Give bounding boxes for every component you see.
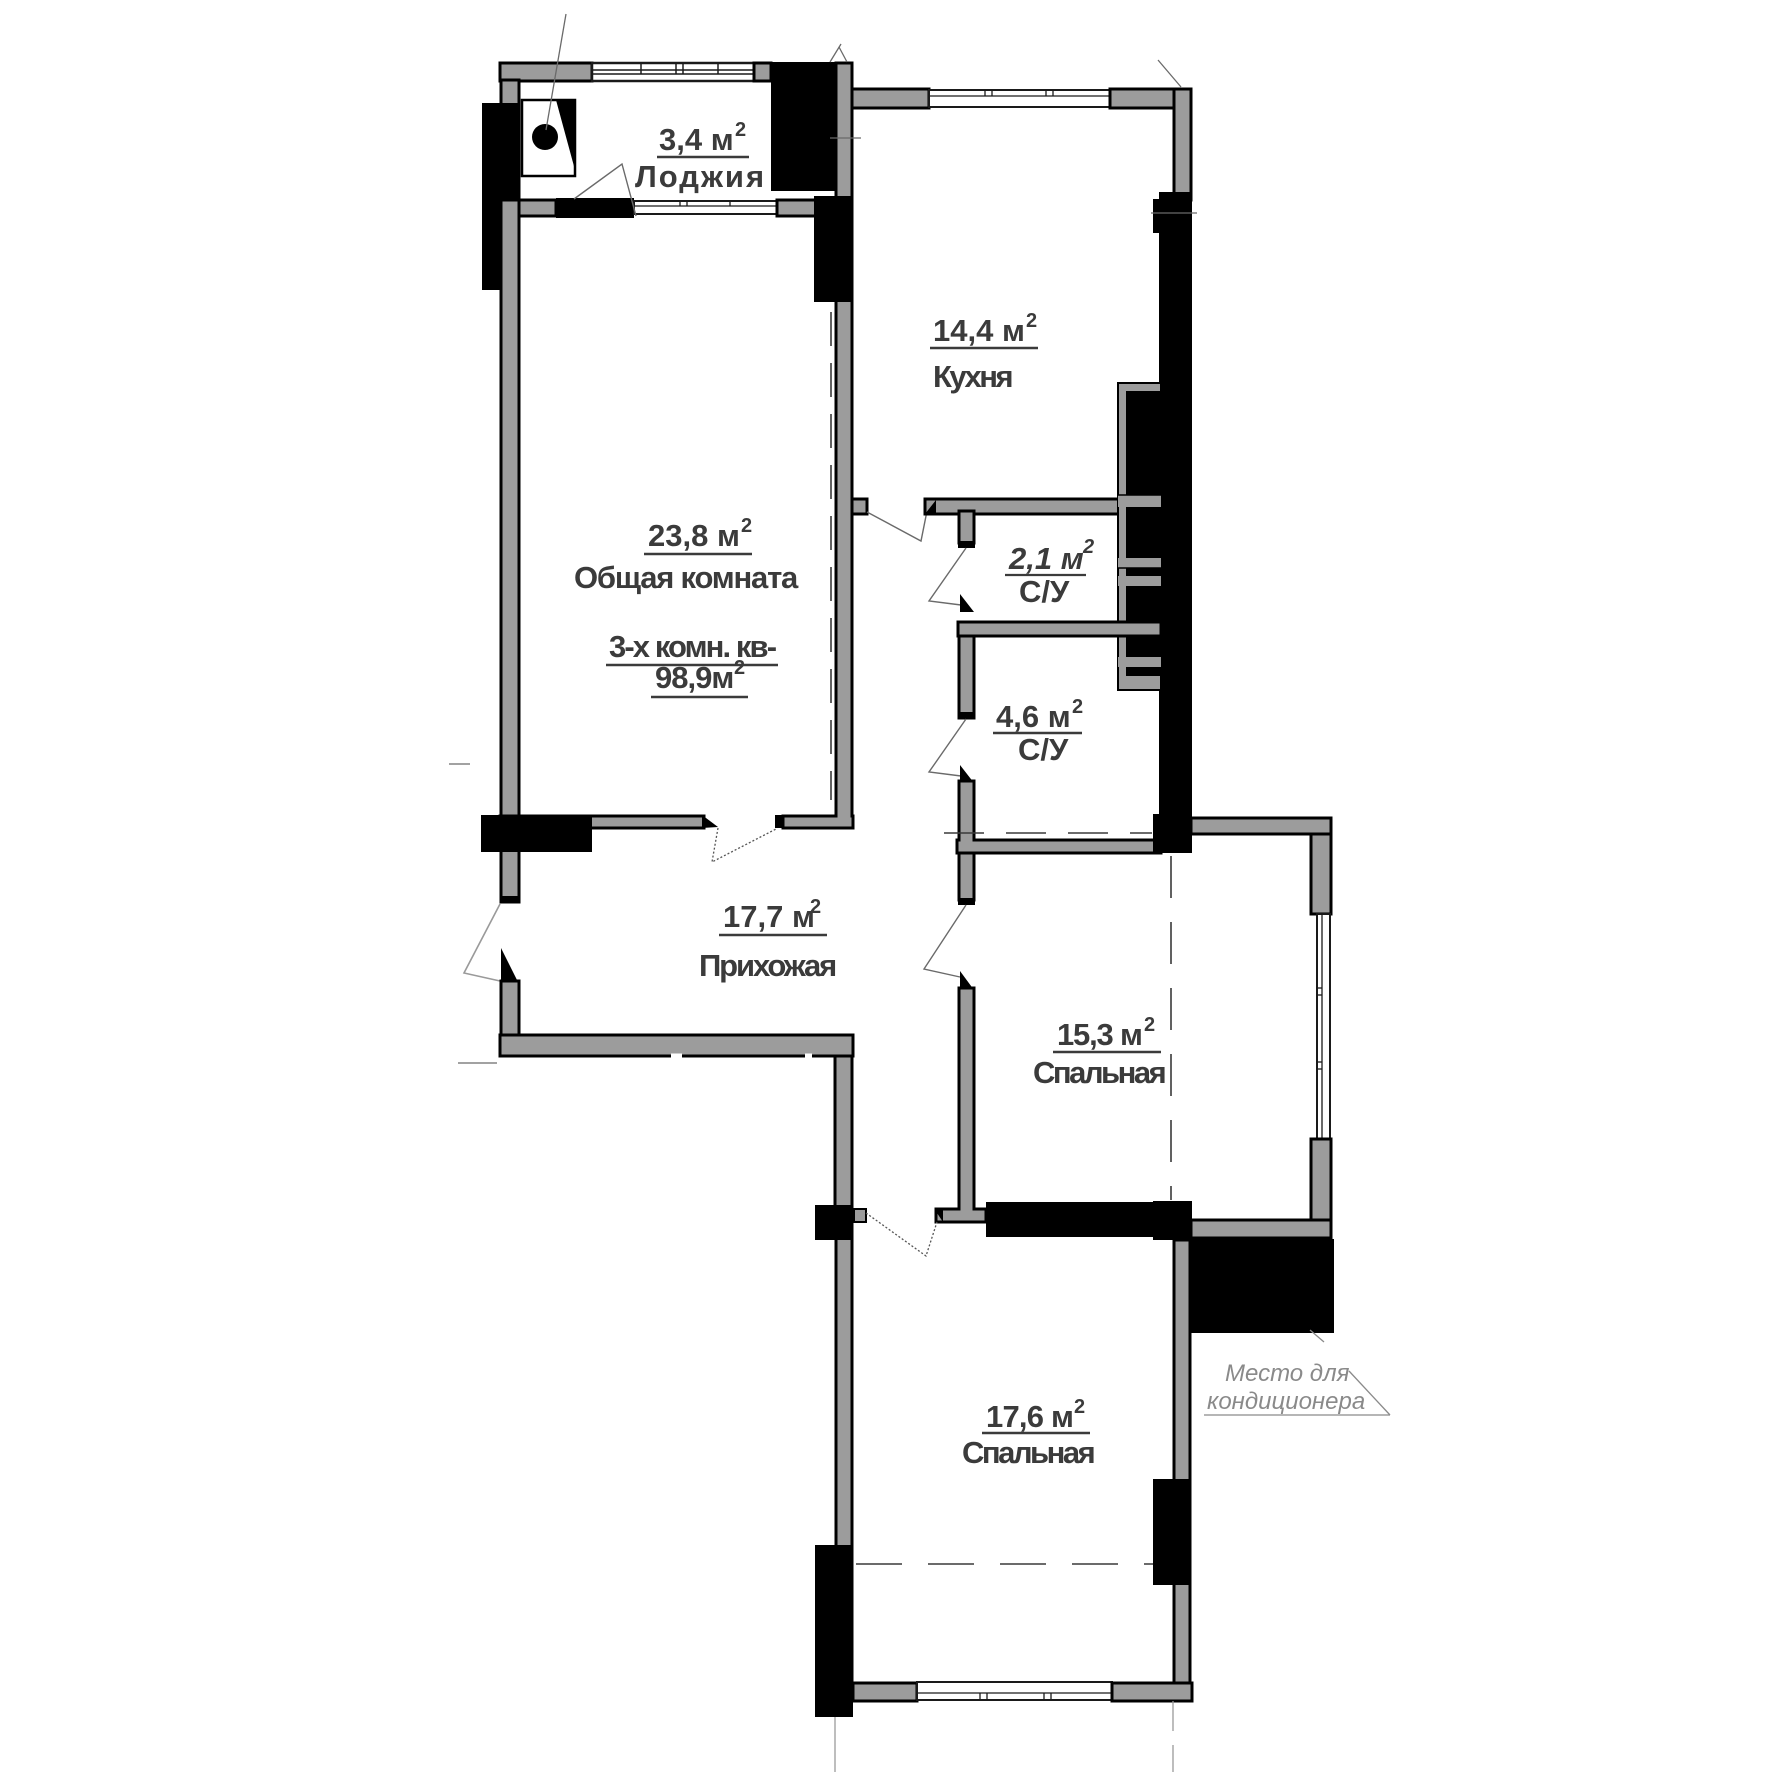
svg-text:Место для: Место для [1225, 1360, 1350, 1387]
svg-text:2,1 м: 2,1 м [1008, 541, 1084, 576]
svg-text:2: 2 [1144, 1014, 1155, 1036]
svg-text:2: 2 [734, 657, 745, 679]
svg-text:С/У: С/У [1019, 574, 1070, 609]
svg-text:Спальная: Спальная [1033, 1055, 1165, 1090]
svg-text:3-х комн. кв-: 3-х комн. кв- [609, 629, 777, 664]
svg-text:2: 2 [1072, 696, 1083, 718]
svg-text:2: 2 [810, 896, 821, 918]
svg-text:Прихожая: Прихожая [699, 948, 835, 983]
svg-text:Кухня: Кухня [933, 359, 1012, 394]
svg-text:4,6 м: 4,6 м [996, 699, 1071, 734]
svg-text:98,9м: 98,9м [655, 660, 733, 695]
svg-text:Спальная: Спальная [962, 1435, 1094, 1470]
svg-text:2: 2 [1082, 536, 1094, 558]
svg-text:кондиционера: кондиционера [1207, 1388, 1365, 1415]
svg-text:2: 2 [1026, 310, 1037, 332]
svg-text:3,4 м: 3,4 м [659, 122, 734, 157]
svg-text:15,3 м: 15,3 м [1057, 1017, 1142, 1052]
svg-text:Общая комната: Общая комната [574, 560, 799, 595]
svg-text:Лоджия: Лоджия [635, 159, 766, 194]
svg-text:14,4 м: 14,4 м [933, 313, 1025, 348]
svg-text:С/У: С/У [1018, 732, 1069, 767]
svg-text:17,6 м: 17,6 м [986, 1399, 1073, 1434]
svg-text:2: 2 [735, 119, 746, 141]
svg-text:2: 2 [741, 515, 752, 537]
svg-text:2: 2 [1074, 1396, 1085, 1418]
svg-text:23,8 м: 23,8 м [648, 518, 740, 553]
svg-text:17,7 м: 17,7 м [723, 899, 815, 934]
